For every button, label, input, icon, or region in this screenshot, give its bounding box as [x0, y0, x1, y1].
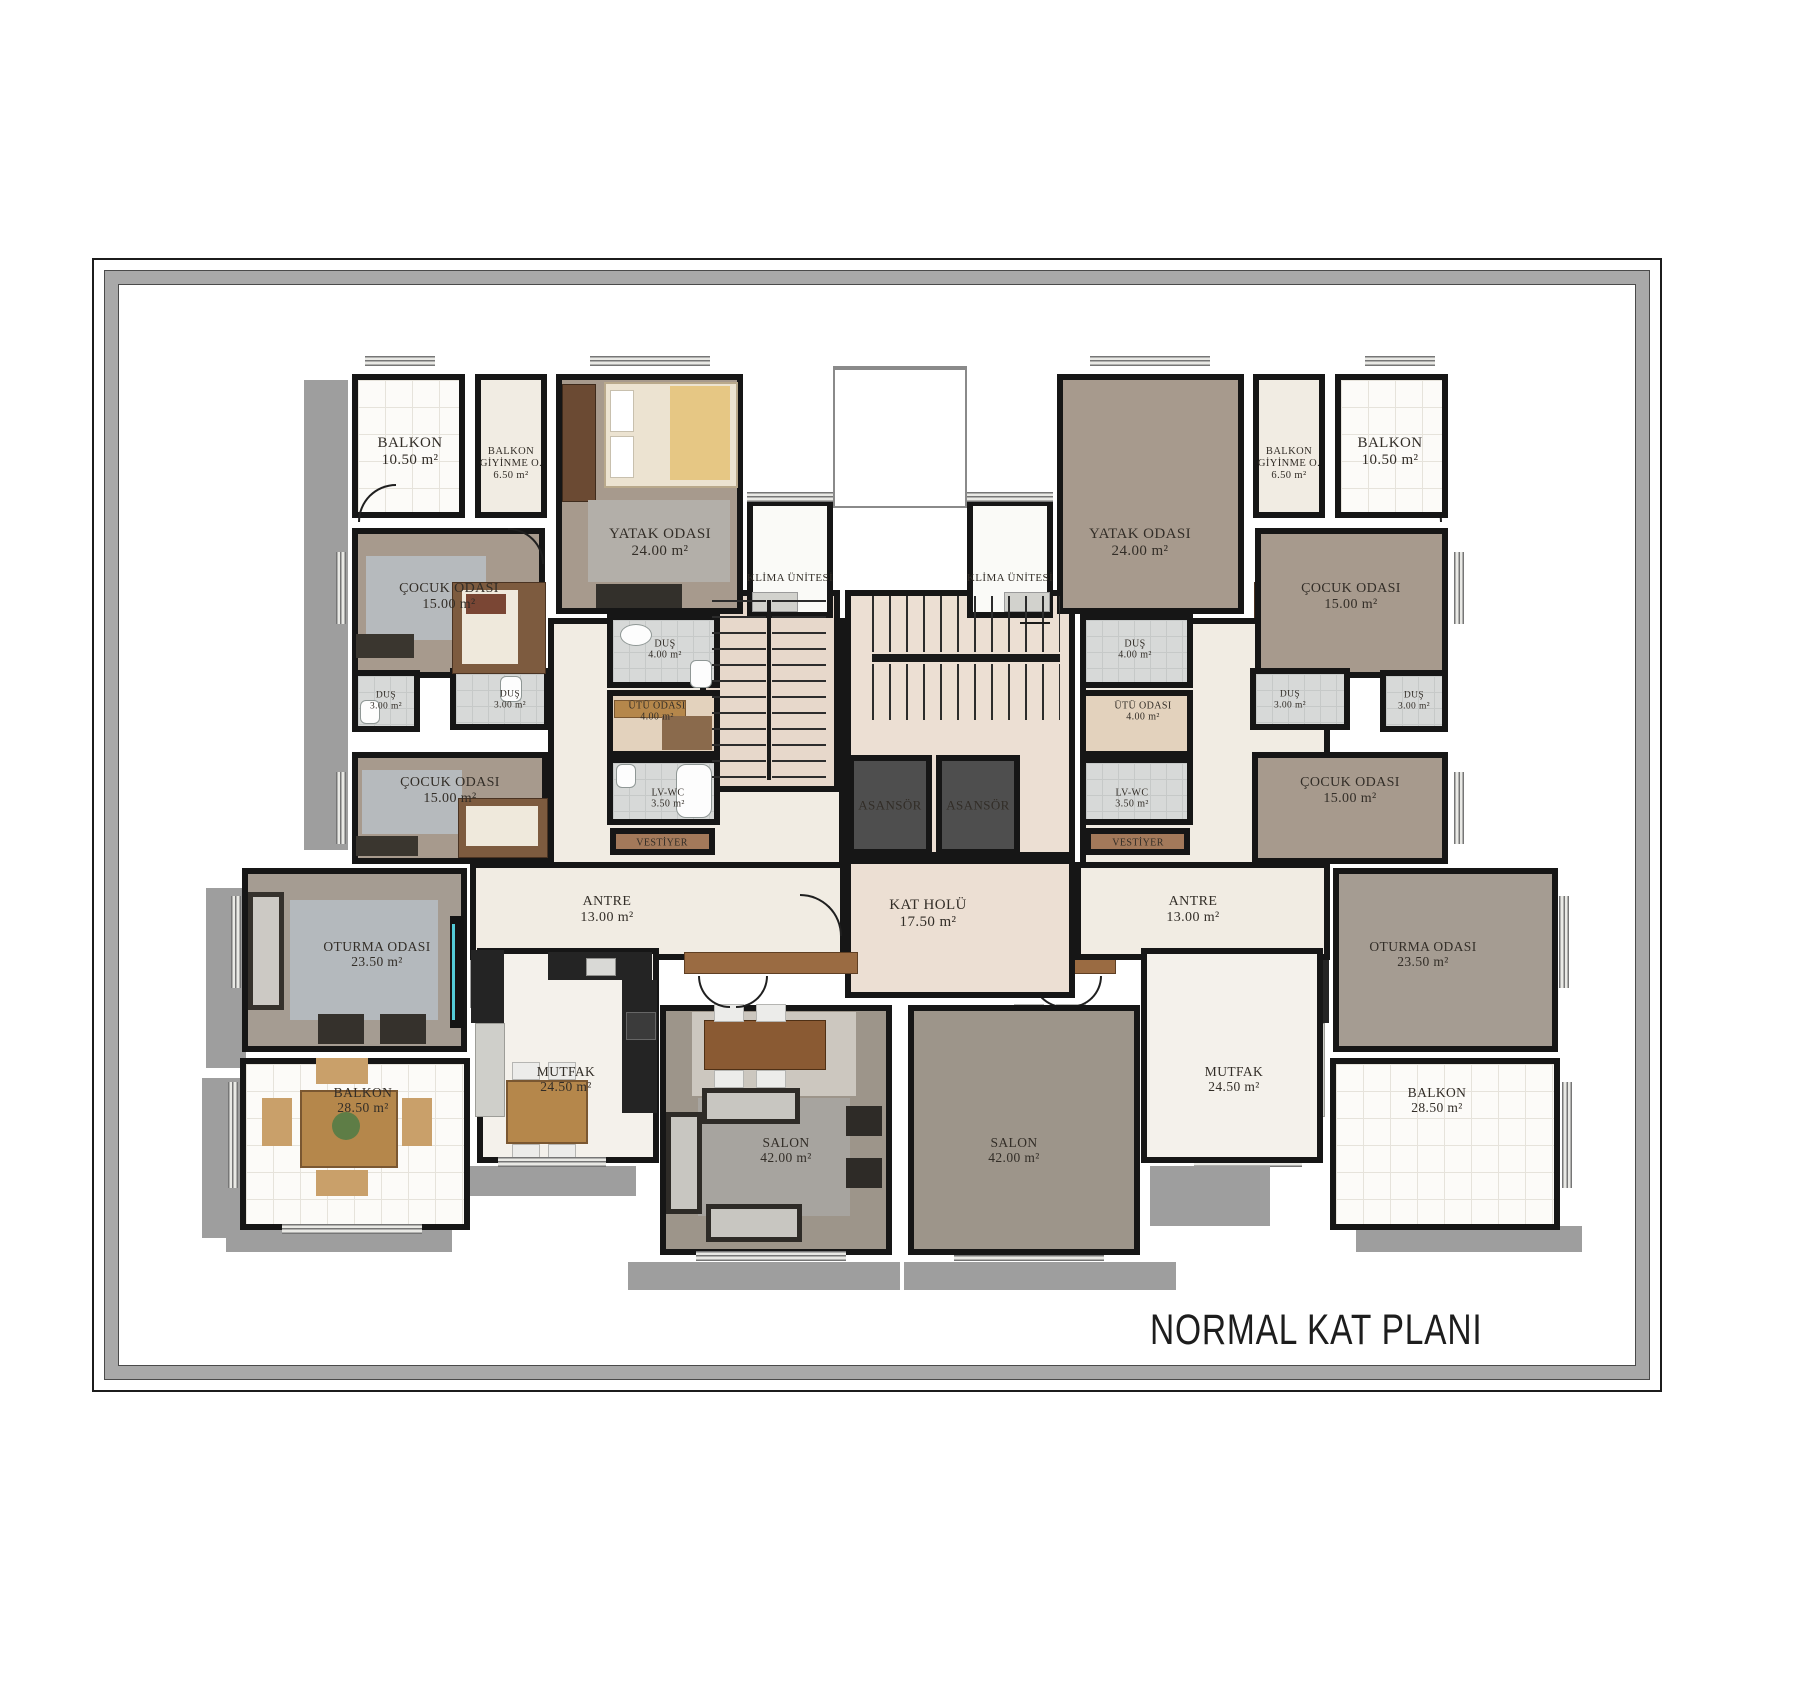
decor: ÇOCUK ODASI: [1300, 775, 1400, 791]
decor: ANTRE: [580, 894, 633, 910]
cocuk-odasi-2-right: [1252, 752, 1448, 864]
decor: 24.50 m²: [1205, 1079, 1263, 1094]
balkon-top-right-label: BALKON10.50 m²: [1358, 435, 1423, 469]
stair-direction-line: [1020, 622, 1050, 624]
decor: 28.50 m²: [1408, 1100, 1467, 1115]
decor: LV-WC: [1115, 788, 1149, 799]
armchair-icon: [846, 1106, 882, 1136]
antre-right-label: ANTRE13.00 m²: [1166, 894, 1219, 926]
chair-icon: [402, 1098, 432, 1146]
giyinme-left-label: BALKONGİYİNME O.6.50 m²: [480, 446, 542, 482]
chair-icon: [316, 1170, 368, 1196]
stairs-icon: [872, 664, 1060, 720]
asansor-right-label: ASANSÖR: [946, 799, 1009, 814]
decor: 3.00 m²: [494, 700, 526, 711]
window-icon: [336, 552, 346, 624]
decor: 3.00 m²: [1274, 700, 1306, 711]
decor: GİYİNME O.: [1258, 458, 1320, 470]
decor: 6.50 m²: [1258, 470, 1320, 482]
cocuk-odasi-2-left-label: ÇOCUK ODASI15.00 m²: [400, 775, 500, 807]
window-icon: [336, 772, 346, 844]
giyinme-right-label: BALKONGİYİNME O.6.50 m²: [1258, 446, 1320, 482]
antre-left-label: ANTRE13.00 m²: [580, 894, 633, 926]
bed-blanket: [670, 386, 730, 480]
utu-odasi-right-label: ÜTÜ ODASI4.00 m²: [1114, 701, 1171, 724]
balkon-bottom-right-label: BALKON28.50 m²: [1408, 1085, 1467, 1116]
decor: DUŞ: [370, 690, 402, 701]
decor: DUŞ: [1118, 639, 1152, 650]
salon-left-label: SALON42.00 m²: [760, 1135, 812, 1166]
decor: LV-WC: [651, 788, 685, 799]
toilet-icon: [690, 660, 712, 688]
sofa-cushions: [711, 1209, 797, 1237]
desk-icon: [356, 634, 414, 658]
decor: 15.00 m²: [1301, 597, 1401, 613]
yatak-odasi-right-label: YATAK ODASI24.00 m²: [1089, 526, 1191, 560]
light-shaft: [833, 368, 967, 508]
decor: KAT HOLÜ: [889, 897, 967, 914]
decor: SALON: [988, 1135, 1040, 1150]
decor: 3.00 m²: [370, 701, 402, 712]
desk-icon: [356, 836, 418, 856]
yatak-odasi-right: [1057, 374, 1244, 614]
decor: 3.00 m²: [1398, 701, 1430, 712]
sofa-cushions: [707, 1093, 795, 1119]
decor: 42.00 m²: [988, 1150, 1040, 1165]
mutfak-right-label: MUTFAK24.50 m²: [1205, 1064, 1263, 1095]
building-shadow: [1150, 1166, 1270, 1226]
armchair-icon: [318, 1014, 364, 1044]
dus3b-left-label: DUŞ3.00 m²: [494, 689, 526, 710]
decor: ASANSÖR: [858, 799, 921, 814]
decor: 3.50 m²: [651, 799, 685, 810]
decor: DUŞ: [494, 689, 526, 700]
decor: 3.50 m²: [1115, 799, 1149, 810]
chair-icon: [316, 1058, 368, 1084]
window-icon: [747, 492, 833, 502]
plan-title: NORMAL KAT PLANI: [1150, 1306, 1482, 1355]
decor: 28.50 m²: [334, 1100, 393, 1115]
window-icon: [365, 356, 435, 366]
asansor-left-label: ASANSÖR: [858, 799, 921, 814]
console-icon: [684, 952, 858, 974]
mutfak-left-label: MUTFAK24.50 m²: [537, 1064, 595, 1095]
window-icon: [1454, 772, 1464, 844]
decor: 4.00 m²: [648, 650, 682, 661]
building-shadow: [628, 1262, 900, 1290]
mutfak-right: [1141, 948, 1323, 1163]
kitchen-cabinet: [475, 1023, 505, 1117]
bed-pillow: [610, 436, 634, 478]
plant-icon: [332, 1112, 360, 1140]
stairs-icon: [872, 596, 1060, 652]
chair-icon: [756, 1004, 786, 1022]
kitchen-counter: [471, 950, 504, 1023]
antre-left: [470, 862, 846, 960]
decor: 6.50 m²: [480, 470, 542, 482]
decor: BALKON: [1258, 446, 1320, 458]
toilet-icon: [616, 764, 636, 788]
window-icon: [590, 356, 710, 366]
dus4-left-label: DUŞ4.00 m²: [648, 639, 682, 662]
decor: 17.50 m²: [889, 914, 967, 931]
decor: 10.50 m²: [378, 452, 443, 469]
stairs-icon: [772, 600, 826, 780]
decor: 42.00 m²: [760, 1150, 812, 1165]
armchair-icon: [380, 1014, 426, 1044]
decor: 4.00 m²: [1118, 650, 1152, 661]
decor: DUŞ: [648, 639, 682, 650]
window-icon: [967, 492, 1053, 502]
yatak-odasi-left-label: YATAK ODASI24.00 m²: [609, 526, 711, 560]
sink-icon: [586, 958, 616, 976]
decor: 10.50 m²: [1358, 452, 1423, 469]
window-icon: [228, 1082, 238, 1188]
decor: 23.50 m²: [323, 954, 430, 969]
decor: BALKON: [1358, 435, 1423, 452]
kitchen-counter: [622, 980, 657, 1113]
lv-wc-left-label: LV-WC3.50 m²: [651, 788, 685, 811]
window-icon: [1090, 356, 1210, 366]
decor: YATAK ODASI: [609, 526, 711, 543]
decor: BALKON: [480, 446, 542, 458]
decor: VESTİYER: [636, 837, 688, 848]
decor: 13.00 m²: [580, 910, 633, 926]
bed-pillow: [610, 390, 634, 432]
window-icon: [1559, 896, 1569, 988]
oturma-odasi-right-label: OTURMA ODASI23.50 m²: [1369, 939, 1476, 970]
stove-icon: [626, 1012, 656, 1040]
decor: ÇOCUK ODASI: [1301, 581, 1401, 597]
window-icon: [231, 896, 241, 988]
decor: SALON: [760, 1135, 812, 1150]
vestiyer-left-label: VESTİYER: [636, 837, 688, 848]
decor: BALKON: [334, 1085, 393, 1100]
chair-icon: [714, 1070, 744, 1088]
wardrobe-icon: [562, 384, 596, 502]
decor: BALKON: [378, 435, 443, 452]
decor: DUŞ: [1398, 690, 1430, 701]
window-icon: [498, 1157, 606, 1167]
decor: ÜTÜ ODASI: [1114, 701, 1171, 712]
decor: YATAK ODASI: [1089, 526, 1191, 543]
decor: 15.00 m²: [399, 597, 499, 613]
kat-holu-label: KAT HOLÜ17.50 m²: [889, 897, 967, 931]
window-icon: [282, 1224, 422, 1234]
dining-table-icon: [704, 1020, 826, 1070]
decor: ÇOCUK ODASI: [400, 775, 500, 791]
dus4-right-label: DUŞ4.00 m²: [1118, 639, 1152, 662]
decor: ANTRE: [1166, 894, 1219, 910]
decor: ÜTÜ ODASI: [628, 701, 685, 712]
salon-right-label: SALON42.00 m²: [988, 1135, 1040, 1166]
utu-odasi-left-label: ÜTÜ ODASI4.00 m²: [628, 701, 685, 724]
shaft-top-line: [833, 366, 967, 369]
decor: MUTFAK: [537, 1064, 595, 1079]
armchair-icon: [846, 1158, 882, 1188]
window-icon: [696, 1251, 846, 1261]
klima-unit-left-label: KLİMA ÜNİTESİ: [747, 572, 833, 584]
stair-landing-divider: [872, 654, 1060, 662]
floor-plan: KAT HOLÜ17.50 m²KLİMA ÜNİTESİKLİMA ÜNİTE…: [0, 0, 1808, 1700]
chair-icon: [512, 1062, 540, 1080]
decor: KLİMA ÜNİTESİ: [747, 572, 833, 584]
decor: OTURMA ODASI: [1369, 939, 1476, 954]
window-icon: [1454, 552, 1464, 624]
chair-icon: [756, 1070, 786, 1088]
decor: 15.00 m²: [400, 791, 500, 807]
cocuk-odasi-2-right-label: ÇOCUK ODASI15.00 m²: [1300, 775, 1400, 807]
decor: BALKON: [1408, 1085, 1467, 1100]
balkon-bottom-left-label: BALKON28.50 m²: [334, 1085, 393, 1116]
decor: ÇOCUK ODASI: [399, 581, 499, 597]
dus3a-right-label: DUŞ3.00 m²: [1398, 690, 1430, 711]
decor: 4.00 m²: [628, 712, 685, 723]
decor: OTURMA ODASI: [323, 939, 430, 954]
floor-plan-page: KAT HOLÜ17.50 m²KLİMA ÜNİTESİKLİMA ÜNİTE…: [0, 0, 1808, 1700]
balkon-top-left-label: BALKON10.50 m²: [378, 435, 443, 469]
decor: 24.00 m²: [609, 543, 711, 560]
salon-right: [908, 1005, 1140, 1255]
building-shadow: [904, 1262, 1176, 1290]
decor: ASANSÖR: [946, 799, 1009, 814]
window-icon: [1562, 1082, 1572, 1188]
sofa-cushions: [671, 1117, 697, 1209]
sink-icon: [620, 624, 652, 646]
decor: MUTFAK: [1205, 1064, 1263, 1079]
decor: KLİMA ÜNİTESİ: [967, 572, 1053, 584]
klima-unit-right-label: KLİMA ÜNİTESİ: [967, 572, 1053, 584]
oturma-odasi-left-label: OTURMA ODASI23.50 m²: [323, 939, 430, 970]
stairs-icon: [712, 600, 766, 780]
bed-mattress: [466, 806, 538, 846]
dus3b-right-label: DUŞ3.00 m²: [1274, 689, 1306, 710]
building-shadow: [456, 1166, 636, 1196]
sofa-cushions: [253, 897, 279, 1005]
decor: 24.50 m²: [537, 1079, 595, 1094]
vestiyer-right-label: VESTİYER: [1112, 837, 1164, 848]
cocuk-odasi-1-right-label: ÇOCUK ODASI15.00 m²: [1301, 581, 1401, 613]
decor: VESTİYER: [1112, 837, 1164, 848]
stair-rail: [767, 600, 771, 780]
window-icon: [1365, 356, 1435, 366]
lv-wc-right-label: LV-WC3.50 m²: [1115, 788, 1149, 811]
decor: 13.00 m²: [1166, 910, 1219, 926]
dus3a-left-label: DUŞ3.00 m²: [370, 690, 402, 711]
decor: 4.00 m²: [1114, 712, 1171, 723]
tv-screen-accent: [452, 924, 455, 1020]
cocuk-odasi-1-left-label: ÇOCUK ODASI15.00 m²: [399, 581, 499, 613]
desk-icon: [596, 584, 682, 608]
decor: 15.00 m²: [1300, 791, 1400, 807]
decor: 24.00 m²: [1089, 543, 1191, 560]
decor: DUŞ: [1274, 689, 1306, 700]
decor: GİYİNME O.: [480, 458, 542, 470]
decor: 23.50 m²: [1369, 954, 1476, 969]
chair-icon: [262, 1098, 292, 1146]
